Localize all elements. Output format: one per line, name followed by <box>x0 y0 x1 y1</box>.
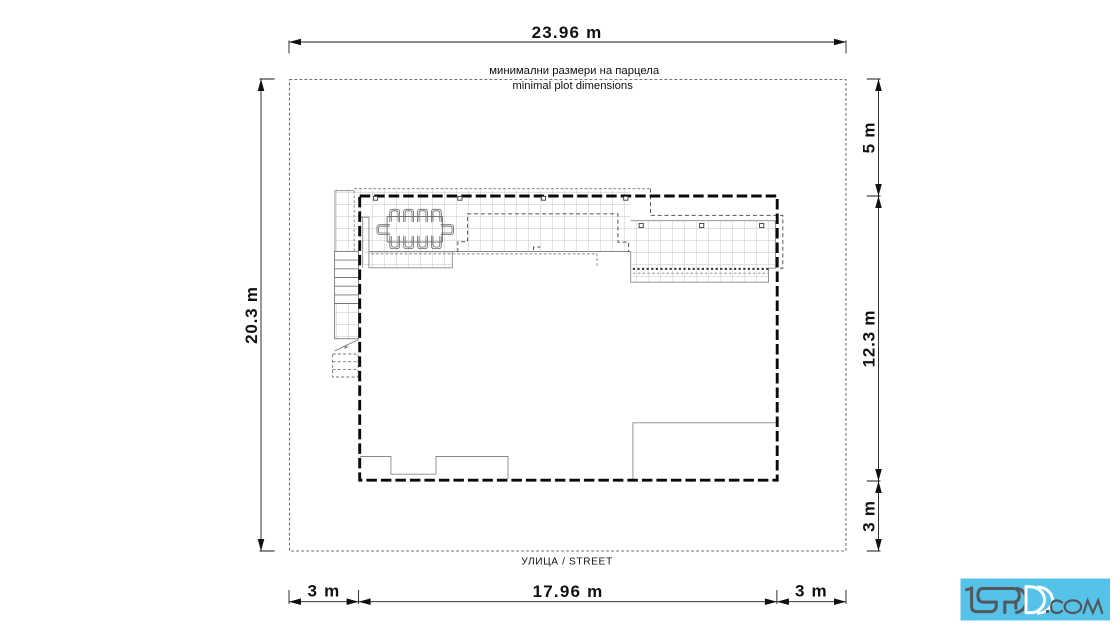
svg-text:17.96 m: 17.96 m <box>533 582 604 601</box>
svg-text:минимални размери на парцела: минимални размери на парцела <box>489 65 660 77</box>
svg-text:23.96 m: 23.96 m <box>532 23 603 42</box>
svg-text:12.3 m: 12.3 m <box>860 310 879 368</box>
svg-text:3 m: 3 m <box>308 582 341 601</box>
svg-text:3 m: 3 m <box>795 582 828 601</box>
svg-text:5 m: 5 m <box>860 122 879 154</box>
svg-text:УЛИЦА / STREET: УЛИЦА / STREET <box>521 557 613 568</box>
svg-text:minimal plot dimensions: minimal plot dimensions <box>512 80 633 92</box>
svg-text:3 m: 3 m <box>860 500 879 532</box>
svg-text:20.3 m: 20.3 m <box>242 286 261 344</box>
